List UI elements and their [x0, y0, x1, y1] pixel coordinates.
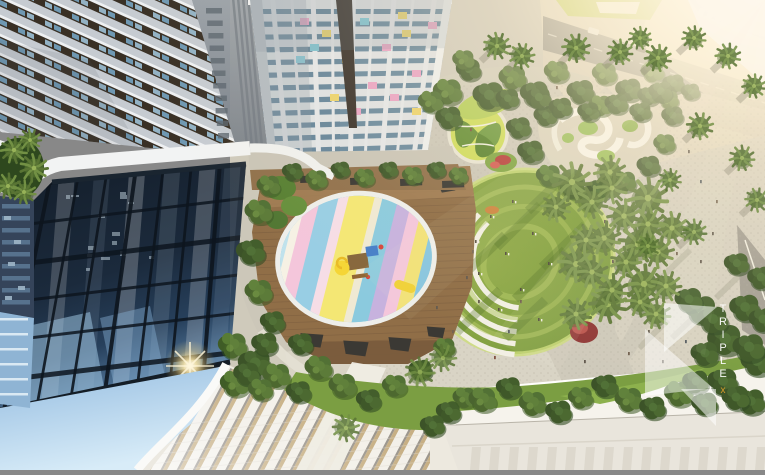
- svg-text:E: E: [719, 368, 726, 380]
- svg-text:R: R: [719, 316, 727, 328]
- svg-text:T: T: [720, 303, 727, 315]
- svg-text:x: x: [721, 385, 726, 396]
- svg-text:L: L: [720, 355, 726, 367]
- svg-text:I: I: [721, 329, 724, 341]
- svg-text:P: P: [719, 342, 726, 354]
